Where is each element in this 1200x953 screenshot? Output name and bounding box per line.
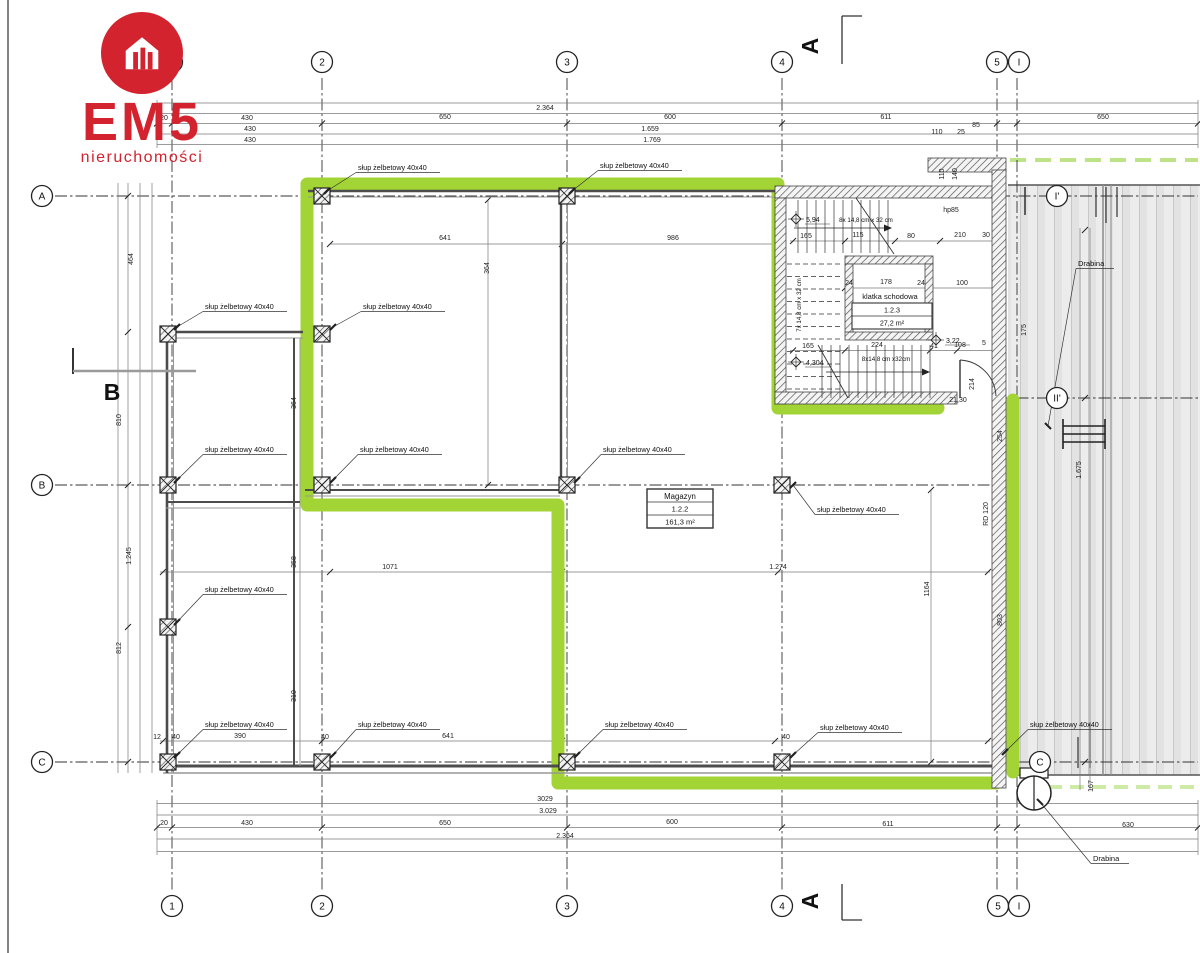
grid-bubble-3: 3	[557, 896, 578, 917]
grid-bubble-5: 5	[987, 52, 1008, 73]
grid-bubble-I: I	[1009, 52, 1030, 73]
svg-text:słup żelbetowy 40x40: słup żelbetowy 40x40	[605, 720, 674, 729]
svg-text:słup żelbetowy 40x40: słup żelbetowy 40x40	[363, 302, 432, 311]
dimension-text: 650	[439, 820, 451, 827]
room-label-magazyn: Magazyn 1.2.2 161,3 m²	[647, 489, 713, 528]
svg-text:3: 3	[564, 902, 570, 913]
dimension-text: 80	[907, 233, 915, 240]
column-annotations: słup żelbetowy 40x40słup żelbetowy 40x40…	[174, 161, 1112, 758]
dimension-text: hp85	[943, 207, 959, 214]
svg-text:3: 3	[564, 58, 570, 69]
dimension-text: 178	[880, 279, 892, 286]
dimension-text: 214	[969, 378, 976, 390]
column	[314, 754, 330, 770]
dimension-text: 810	[116, 414, 123, 426]
grid-bubble-C: C	[1030, 752, 1051, 773]
ramp-area	[1008, 185, 1200, 775]
room-area: 161,3 m²	[665, 518, 695, 527]
svg-text:I: I	[1018, 58, 1021, 69]
dimension-text: 812	[116, 642, 123, 654]
dimension-text: 630	[1122, 822, 1134, 829]
room-name: Magazyn	[664, 492, 696, 501]
dimension-text: 20	[160, 820, 168, 827]
stair-flight-top-label: 8x 14,8 cm x 32 cm	[839, 217, 893, 224]
dimension-text: 1164	[924, 581, 931, 596]
svg-text:słup żelbetowy 40x40: słup żelbetowy 40x40	[360, 445, 429, 454]
dimension-text: 650	[439, 114, 451, 121]
dimension-text: 358	[291, 556, 298, 568]
room-number: 1.2.2	[672, 505, 689, 514]
column-annotation: słup żelbetowy 40x40	[574, 445, 685, 483]
svg-text:słup żelbetowy 40x40: słup żelbetowy 40x40	[600, 161, 669, 170]
dimension-text: 110	[939, 168, 946, 179]
column-annotation: słup żelbetowy 40x40	[174, 445, 287, 483]
svg-text:4: 4	[779, 902, 785, 913]
grid-bubble-A: A	[32, 186, 53, 207]
column-annotation: słup żelbetowy 40x40	[174, 302, 287, 330]
section-letter-A: A	[797, 893, 823, 910]
dimension-text: 167	[1088, 780, 1095, 792]
green-highlight	[307, 184, 1013, 783]
column-annotation: słup żelbetowy 40x40	[174, 720, 287, 758]
svg-text:słup żelbetowy 40x40: słup żelbetowy 40x40	[820, 723, 889, 732]
dimension-text: 803	[997, 614, 1004, 626]
dimension-text: 254	[997, 430, 1004, 442]
dimension-text: 224	[871, 342, 883, 349]
grid-bubble-4: 4	[772, 52, 793, 73]
column-annotation: słup żelbetowy 40x40	[790, 482, 899, 515]
svg-text:5: 5	[995, 902, 1001, 913]
svg-text:słup żelbetowy 40x40: słup żelbetowy 40x40	[205, 585, 274, 594]
svg-text:4,304: 4,304	[806, 360, 824, 367]
dimension-text: 611	[882, 821, 893, 828]
column-annotation: słup żelbetowy 40x40	[330, 720, 440, 758]
level-marker: 4,304	[788, 354, 830, 370]
grid-bubble-I: I	[1009, 896, 1030, 917]
svg-text:4: 4	[779, 58, 785, 69]
svg-text:1: 1	[169, 902, 175, 913]
svg-text:5: 5	[994, 58, 1000, 69]
svg-text:3,22: 3,22	[946, 338, 960, 345]
svg-text:II': II'	[1053, 394, 1061, 405]
dimension-text: 2.364	[536, 105, 554, 112]
dimension-text: 85	[972, 122, 980, 129]
svg-text:2: 2	[319, 902, 325, 913]
svg-text:C: C	[1036, 758, 1043, 769]
column	[160, 754, 176, 770]
svg-text:Drabina: Drabina	[1093, 854, 1120, 863]
svg-text:słup żelbetowy 40x40: słup żelbetowy 40x40	[603, 445, 672, 454]
svg-text:słup żelbetowy 40x40: słup żelbetowy 40x40	[1030, 720, 1099, 729]
columns	[160, 188, 790, 770]
column	[559, 477, 575, 493]
svg-text:5,94: 5,94	[806, 217, 820, 224]
dimension-text: 12	[153, 734, 161, 741]
svg-text:słup żelbetowy 40x40: słup żelbetowy 40x40	[205, 302, 274, 311]
svg-text:I': I'	[1055, 192, 1060, 203]
svg-text:słup żelbetowy 40x40: słup żelbetowy 40x40	[205, 445, 274, 454]
dimension-text: 175	[1021, 324, 1028, 336]
column	[160, 326, 176, 342]
dimension-text: 2.364	[556, 833, 574, 840]
svg-text:Drabina: Drabina	[1078, 259, 1105, 268]
logo-subtitle: nieruchomości	[81, 149, 204, 167]
svg-text:A: A	[39, 192, 46, 203]
level-marker: 5,94	[788, 211, 830, 227]
dimension-text: 3029	[537, 796, 553, 803]
dimension-text: 310	[291, 690, 298, 702]
stairwell	[775, 158, 1006, 788]
dimension-text: 3.029	[539, 808, 557, 815]
dimension-text: 110	[931, 129, 942, 136]
svg-text:C: C	[38, 758, 45, 769]
dimension-text: 5	[982, 340, 986, 347]
grid-bubble-B: B	[32, 475, 53, 496]
dimension-text: 986	[667, 235, 679, 242]
dimension-text: 30	[982, 232, 990, 239]
dimension-text: 641	[442, 733, 454, 740]
svg-text:B: B	[39, 481, 46, 492]
dimension-text: 1.245	[126, 547, 133, 565]
dimension-text: 364	[484, 262, 491, 274]
dimension-text: 21,30	[949, 397, 967, 404]
column	[160, 619, 176, 635]
dimension-text: 390	[234, 733, 246, 740]
grid-bubble-C: C	[32, 752, 53, 773]
dimension-text: 1.659	[641, 126, 659, 133]
column-annotation: słup żelbetowy 40x40	[574, 720, 687, 758]
svg-text:słup żelbetowy 40x40: słup żelbetowy 40x40	[358, 163, 427, 172]
logo: EM5 nieruchomości	[22, 12, 262, 167]
dimension-text: 1.675	[1076, 461, 1083, 479]
door-swing-arc	[960, 360, 996, 396]
room-name: klatka schodowa	[862, 292, 918, 301]
dimension-text: 115	[852, 232, 863, 239]
dimension-text: 1071	[382, 564, 398, 571]
ladder-annotation: Drabina	[1037, 799, 1129, 864]
svg-text:I: I	[1018, 902, 1021, 913]
east-wall	[992, 170, 1006, 788]
dimension-text: 430	[241, 820, 253, 827]
column	[160, 477, 176, 493]
grid-bubble-II': II'	[1047, 388, 1068, 409]
column	[774, 754, 790, 770]
logo-house-icon	[101, 12, 183, 94]
room-area: 27,2 m²	[880, 319, 905, 328]
room-label-stairwell: klatka schodowa 1.2.3 27,2 m²	[852, 292, 932, 329]
grid-bubble-2: 2	[312, 52, 333, 73]
column-annotation: słup żelbetowy 40x40	[330, 302, 445, 330]
dimension-text: 600	[664, 114, 676, 121]
dimension-text: 210	[954, 232, 966, 239]
svg-text:2: 2	[319, 58, 325, 69]
column	[314, 477, 330, 493]
room-number: 1.2.3	[884, 306, 900, 315]
dimension-text: 40	[321, 734, 329, 741]
dimension-text: 40	[172, 734, 180, 741]
grid-bubble-1: 1	[162, 896, 183, 917]
stair-flight-left-label: 7x 14,8 cm x 32 cm	[796, 278, 803, 332]
dimension-text: 40	[782, 734, 790, 741]
svg-text:słup żelbetowy 40x40: słup żelbetowy 40x40	[205, 720, 274, 729]
section-letter-A: A	[797, 38, 823, 55]
column-annotation: słup żelbetowy 40x40	[790, 723, 902, 758]
dimension-text: 165	[800, 233, 812, 240]
column	[774, 477, 790, 493]
logo-brand-text: EM5	[82, 94, 202, 151]
dimension-text: 24	[845, 280, 853, 287]
dimension-text: 165	[802, 343, 814, 350]
dimension-text: 24	[917, 280, 925, 287]
grid-bubble-I': I'	[1047, 186, 1068, 207]
ladder-symbol-south	[1017, 768, 1051, 810]
dimension-text: 1.274	[769, 564, 787, 571]
column-annotation: słup żelbetowy 40x40	[174, 585, 287, 625]
dimension-text: 100	[956, 280, 968, 287]
dimension-text: 600	[666, 819, 678, 826]
grid-bubble-4: 4	[772, 896, 793, 917]
svg-text:słup żelbetowy 40x40: słup żelbetowy 40x40	[817, 505, 886, 514]
dimension-text: 650	[1097, 114, 1109, 121]
dimension-text: 464	[128, 253, 135, 265]
section-letter-B: B	[104, 379, 121, 405]
column	[314, 326, 330, 342]
dimension-text: 1.769	[643, 137, 661, 144]
grid-bubble-3: 3	[557, 52, 578, 73]
dimension-text: 25	[957, 129, 965, 136]
svg-text:słup żelbetowy 40x40: słup żelbetowy 40x40	[358, 720, 427, 729]
grid-bubble-5: 5	[988, 896, 1009, 917]
grid-bubble-2: 2	[312, 896, 333, 917]
dimension-text: 140	[952, 168, 959, 180]
dimension-text: RD 120	[983, 502, 990, 526]
dimension-text: 611	[880, 114, 891, 121]
stair-flight-bottom-label: 8x14,8 cm x32cm	[862, 356, 911, 363]
dimension-text: 641	[439, 235, 451, 242]
column	[559, 754, 575, 770]
dimension-text: 364	[291, 397, 298, 409]
column-annotation: słup żelbetowy 40x40	[330, 445, 442, 483]
